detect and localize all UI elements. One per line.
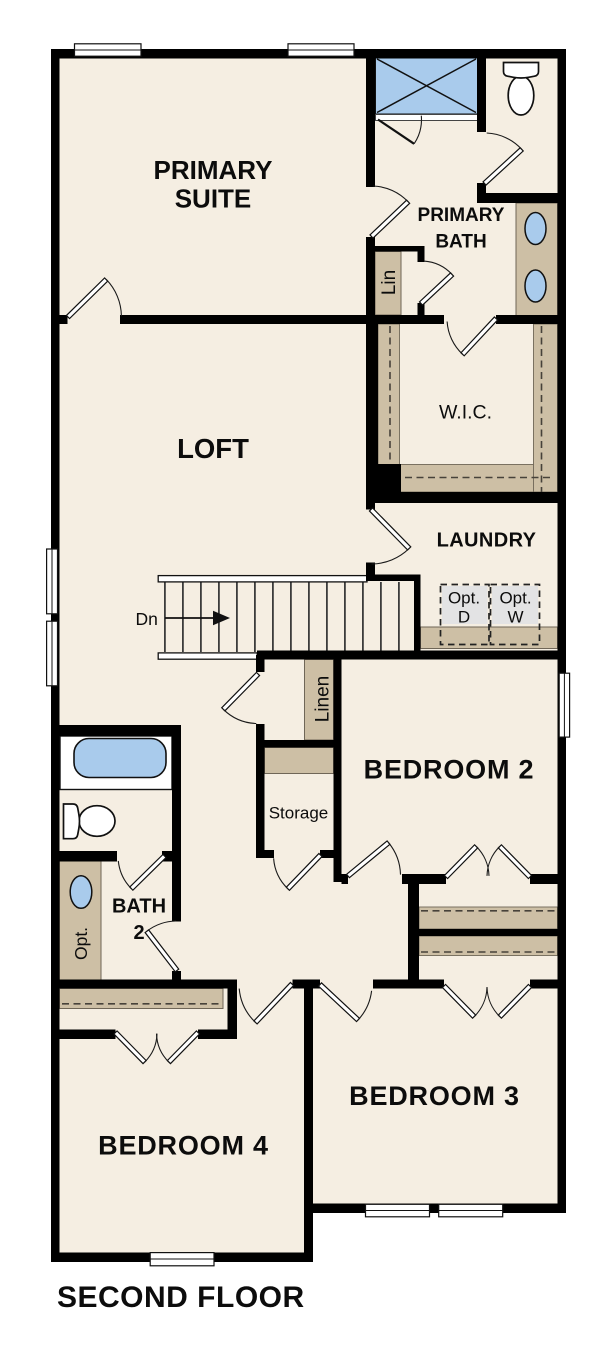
svg-text:Opt.: Opt. xyxy=(71,927,91,960)
svg-text:PRIMARY: PRIMARY xyxy=(418,205,505,226)
svg-text:BEDROOM 4: BEDROOM 4 xyxy=(98,1131,269,1161)
svg-text:BATH: BATH xyxy=(435,232,486,253)
svg-text:Storage: Storage xyxy=(269,804,329,823)
svg-text:BATH: BATH xyxy=(112,896,166,918)
svg-text:LAUNDRY: LAUNDRY xyxy=(437,530,537,552)
svg-text:BEDROOM 2: BEDROOM 2 xyxy=(364,755,535,785)
svg-text:Opt.: Opt. xyxy=(499,589,531,608)
svg-text:2: 2 xyxy=(133,922,144,944)
svg-text:LOFT: LOFT xyxy=(177,433,249,464)
svg-text:Dn: Dn xyxy=(136,609,158,629)
svg-text:PRIMARY: PRIMARY xyxy=(154,155,273,185)
svg-text:D: D xyxy=(458,608,470,627)
svg-text:Linen: Linen xyxy=(313,676,334,723)
svg-text:W: W xyxy=(507,608,523,627)
svg-text:SECOND FLOOR: SECOND FLOOR xyxy=(57,1281,305,1314)
svg-text:Lin: Lin xyxy=(379,270,400,295)
svg-text:Opt.: Opt. xyxy=(448,589,480,608)
svg-text:BEDROOM 3: BEDROOM 3 xyxy=(349,1081,520,1111)
svg-text:W.I.C.: W.I.C. xyxy=(439,402,492,424)
svg-text:SUITE: SUITE xyxy=(175,184,252,214)
